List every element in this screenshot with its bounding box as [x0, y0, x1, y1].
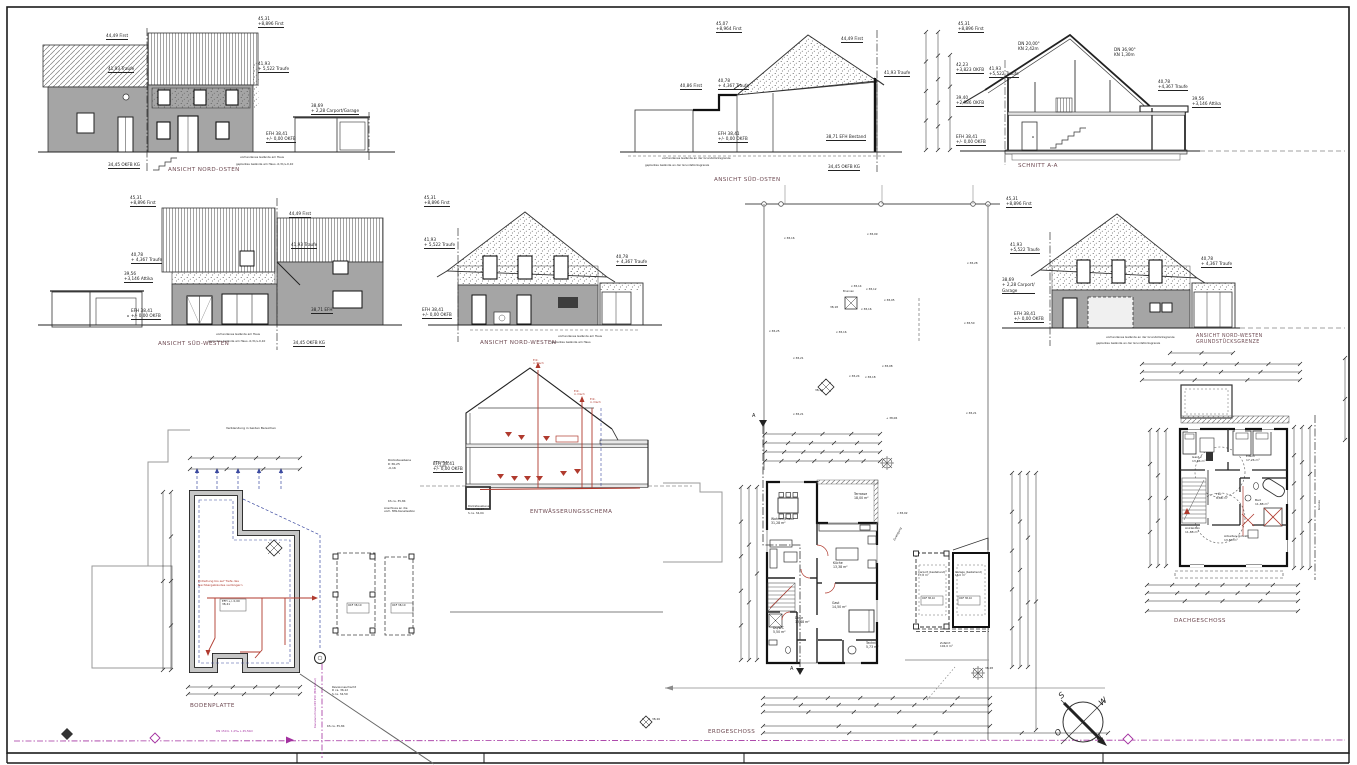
- plan-dachgeschoss: [1140, 356, 1347, 613]
- drainage-fixtures: [497, 362, 585, 481]
- revision-shaft: [315, 653, 326, 664]
- drainage-risers: [480, 370, 640, 490]
- roof-left: [43, 45, 148, 87]
- label-dachgeschoss: DACHGESCHOSS: [1174, 618, 1226, 625]
- drawing-sheet: 44,49 First41,93 Traufe45,31 +8,896 Firs…: [0, 0, 1357, 765]
- stairs: [1182, 478, 1206, 523]
- utility-node: [1123, 734, 1133, 744]
- utility-node-dark: [61, 728, 73, 740]
- label-ansicht-nord-osten: ANSICHT NORD-OSTEN: [168, 167, 240, 174]
- elevation-sued-osten: [620, 30, 902, 172]
- section-outline: [466, 368, 612, 487]
- utility-lines: [14, 728, 1345, 744]
- window: [222, 294, 268, 324]
- label-ansicht-sued-westen: ANSICHT SÜD-WESTEN: [158, 341, 229, 348]
- elevation-nord-westen-grenze: [1002, 214, 1345, 355]
- chimney: [1206, 452, 1213, 461]
- stairs: [1050, 128, 1086, 148]
- utility-node: [150, 733, 160, 743]
- round-window: [123, 94, 129, 100]
- slab-wall-outline: [192, 493, 297, 670]
- neighbor-building: [92, 566, 172, 668]
- interior-door: [1022, 122, 1037, 150]
- label-schnitt-a-a: SCHNITT A-A: [1018, 163, 1058, 170]
- wardrobe: [1056, 98, 1072, 112]
- entwaesserung-schema: [420, 362, 692, 509]
- label-ansicht-sued-osten: ANSICHT SÜD-OSTEN: [714, 177, 781, 184]
- dark-panel: [558, 297, 578, 308]
- carport-footprint: [337, 553, 375, 635]
- label-erdgeschoss: ERDGESCHOSS: [708, 729, 755, 736]
- plan-bodenplatte: [92, 430, 434, 764]
- sewer-line: [14, 740, 1345, 741]
- elevation-nord-westen: [428, 212, 662, 342]
- dormer-bay: [1181, 385, 1232, 418]
- wall-existing: [277, 262, 383, 325]
- label-bodenplatte: BODENPLATTE: [190, 703, 235, 710]
- roof-existing: [277, 218, 383, 262]
- section-a-a: [924, 30, 1345, 165]
- label-ansicht-nord-westen: ANSICHT NORD-WESTEN: [480, 340, 556, 347]
- blueprint-artwork: [0, 0, 1357, 765]
- terrace-edge: [817, 480, 878, 484]
- stairs: [768, 583, 795, 611]
- dashed-opening: [1088, 297, 1133, 328]
- label-entwaesserungsschema: ENTWÄSSERUNGSSCHEMA: [530, 509, 612, 516]
- existing-carport-garage: [905, 538, 989, 660]
- roof-main: [162, 208, 275, 272]
- attika: [1140, 106, 1188, 112]
- label-ansicht-nord-westen-grenze: ANSICHT NORD-WESTEN GRUNDSTÜCKSGRENZE: [1196, 334, 1263, 346]
- elevation-sued-westen: [38, 198, 402, 350]
- load-arrows: [197, 471, 281, 491]
- posts: [333, 554, 414, 633]
- roof-main: [148, 33, 258, 85]
- roof-section: [985, 35, 1152, 108]
- basement-pit: [466, 487, 490, 509]
- floor-slab: [1008, 112, 1185, 115]
- elevation-nord-osten: [38, 28, 395, 172]
